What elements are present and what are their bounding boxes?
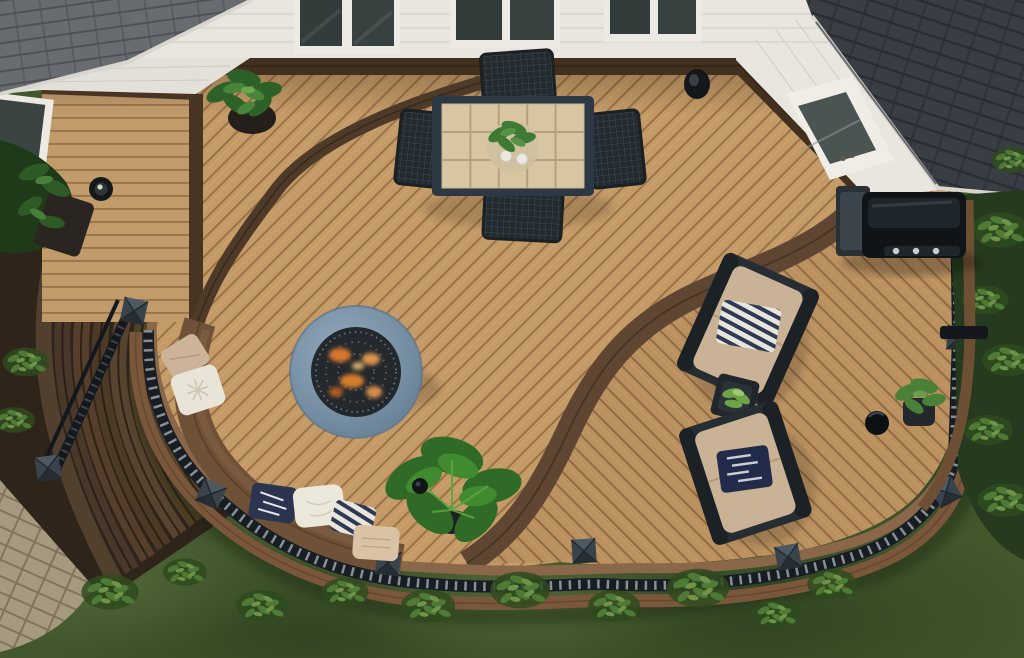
ball-light-right [865, 411, 889, 435]
scene-canvas [0, 0, 1024, 658]
round-wall-light [89, 177, 113, 201]
wall-light [684, 69, 710, 99]
backyard-deck-photo: Aerial view of a curved backyard composi… [0, 0, 1024, 658]
grill [836, 186, 982, 276]
small-bollard-light [412, 478, 428, 494]
